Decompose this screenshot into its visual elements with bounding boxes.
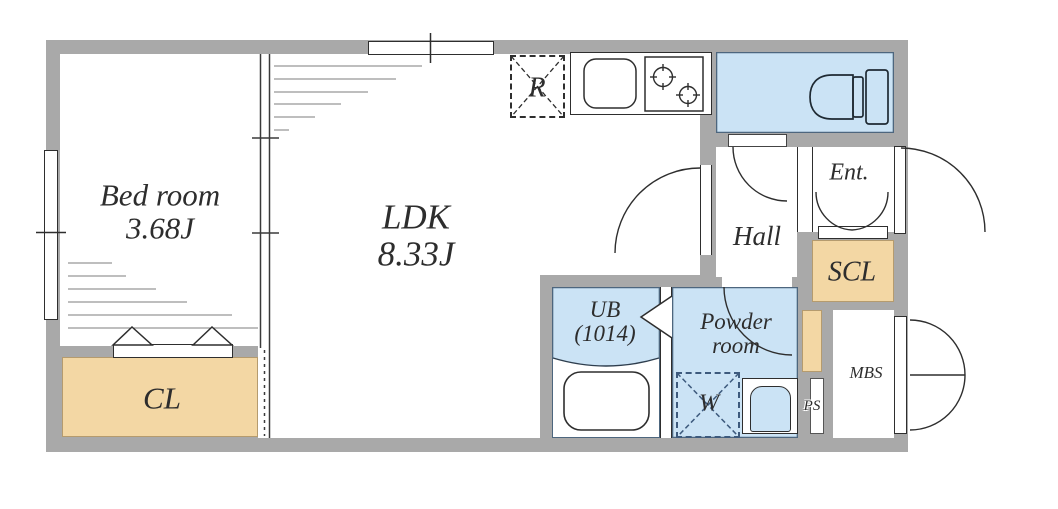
unit-bath-size: (1014) — [574, 322, 635, 346]
ldk-window — [368, 41, 494, 55]
room-ldk-lower — [272, 275, 540, 438]
closet-label: CL — [143, 383, 181, 416]
entrance-door-leaf — [894, 146, 906, 234]
meter-box-label: MBS — [849, 364, 882, 382]
ldk-name: LDK — [378, 199, 455, 236]
bedroom-area: 3.68J — [100, 212, 220, 245]
bath-door-gap — [660, 287, 672, 438]
pipe-space-label: PS — [804, 399, 821, 415]
sliding-door-partition — [258, 54, 272, 438]
room-hall — [716, 147, 797, 277]
entrance-door-arc — [901, 148, 985, 232]
hall-entrance-opening — [797, 147, 813, 232]
powder-room-label: Powder room — [700, 310, 772, 358]
hall-label: Hall — [733, 222, 781, 250]
bedroom-label: Bed room 3.68J — [100, 179, 220, 244]
ldk-label: LDK 8.33J — [378, 199, 455, 273]
room-toilet — [716, 52, 894, 133]
shoe-closet-label: SCL — [828, 257, 876, 286]
unit-bath-name: UB — [574, 298, 635, 322]
kitchen-counter — [570, 52, 712, 115]
closet-folding-door — [113, 344, 233, 358]
bedroom-window — [44, 150, 58, 320]
utility-shaft — [802, 310, 822, 372]
ldk-door-gap — [700, 165, 712, 255]
entrance-label: Ent. — [829, 160, 868, 185]
powder-room-line2: room — [700, 334, 772, 358]
floor-plan: Bed room 3.68J LDK 8.33J CL R UB (1014) … — [0, 0, 1058, 509]
ldk-area: 8.33J — [378, 236, 455, 273]
powder-door-gap — [722, 277, 792, 287]
vanity-basin-icon — [750, 386, 791, 432]
meter-box-door-arcs — [910, 320, 965, 430]
unit-bath-label: UB (1014) — [574, 298, 635, 346]
entrance-step — [818, 226, 888, 239]
toilet-door-gap — [728, 134, 787, 147]
refrigerator-label: R — [528, 73, 545, 102]
bedroom-name: Bed room — [100, 179, 220, 212]
powder-room-line1: Powder — [700, 310, 772, 334]
washer-label: W — [699, 391, 719, 416]
meter-box-door-leaf — [894, 316, 907, 434]
